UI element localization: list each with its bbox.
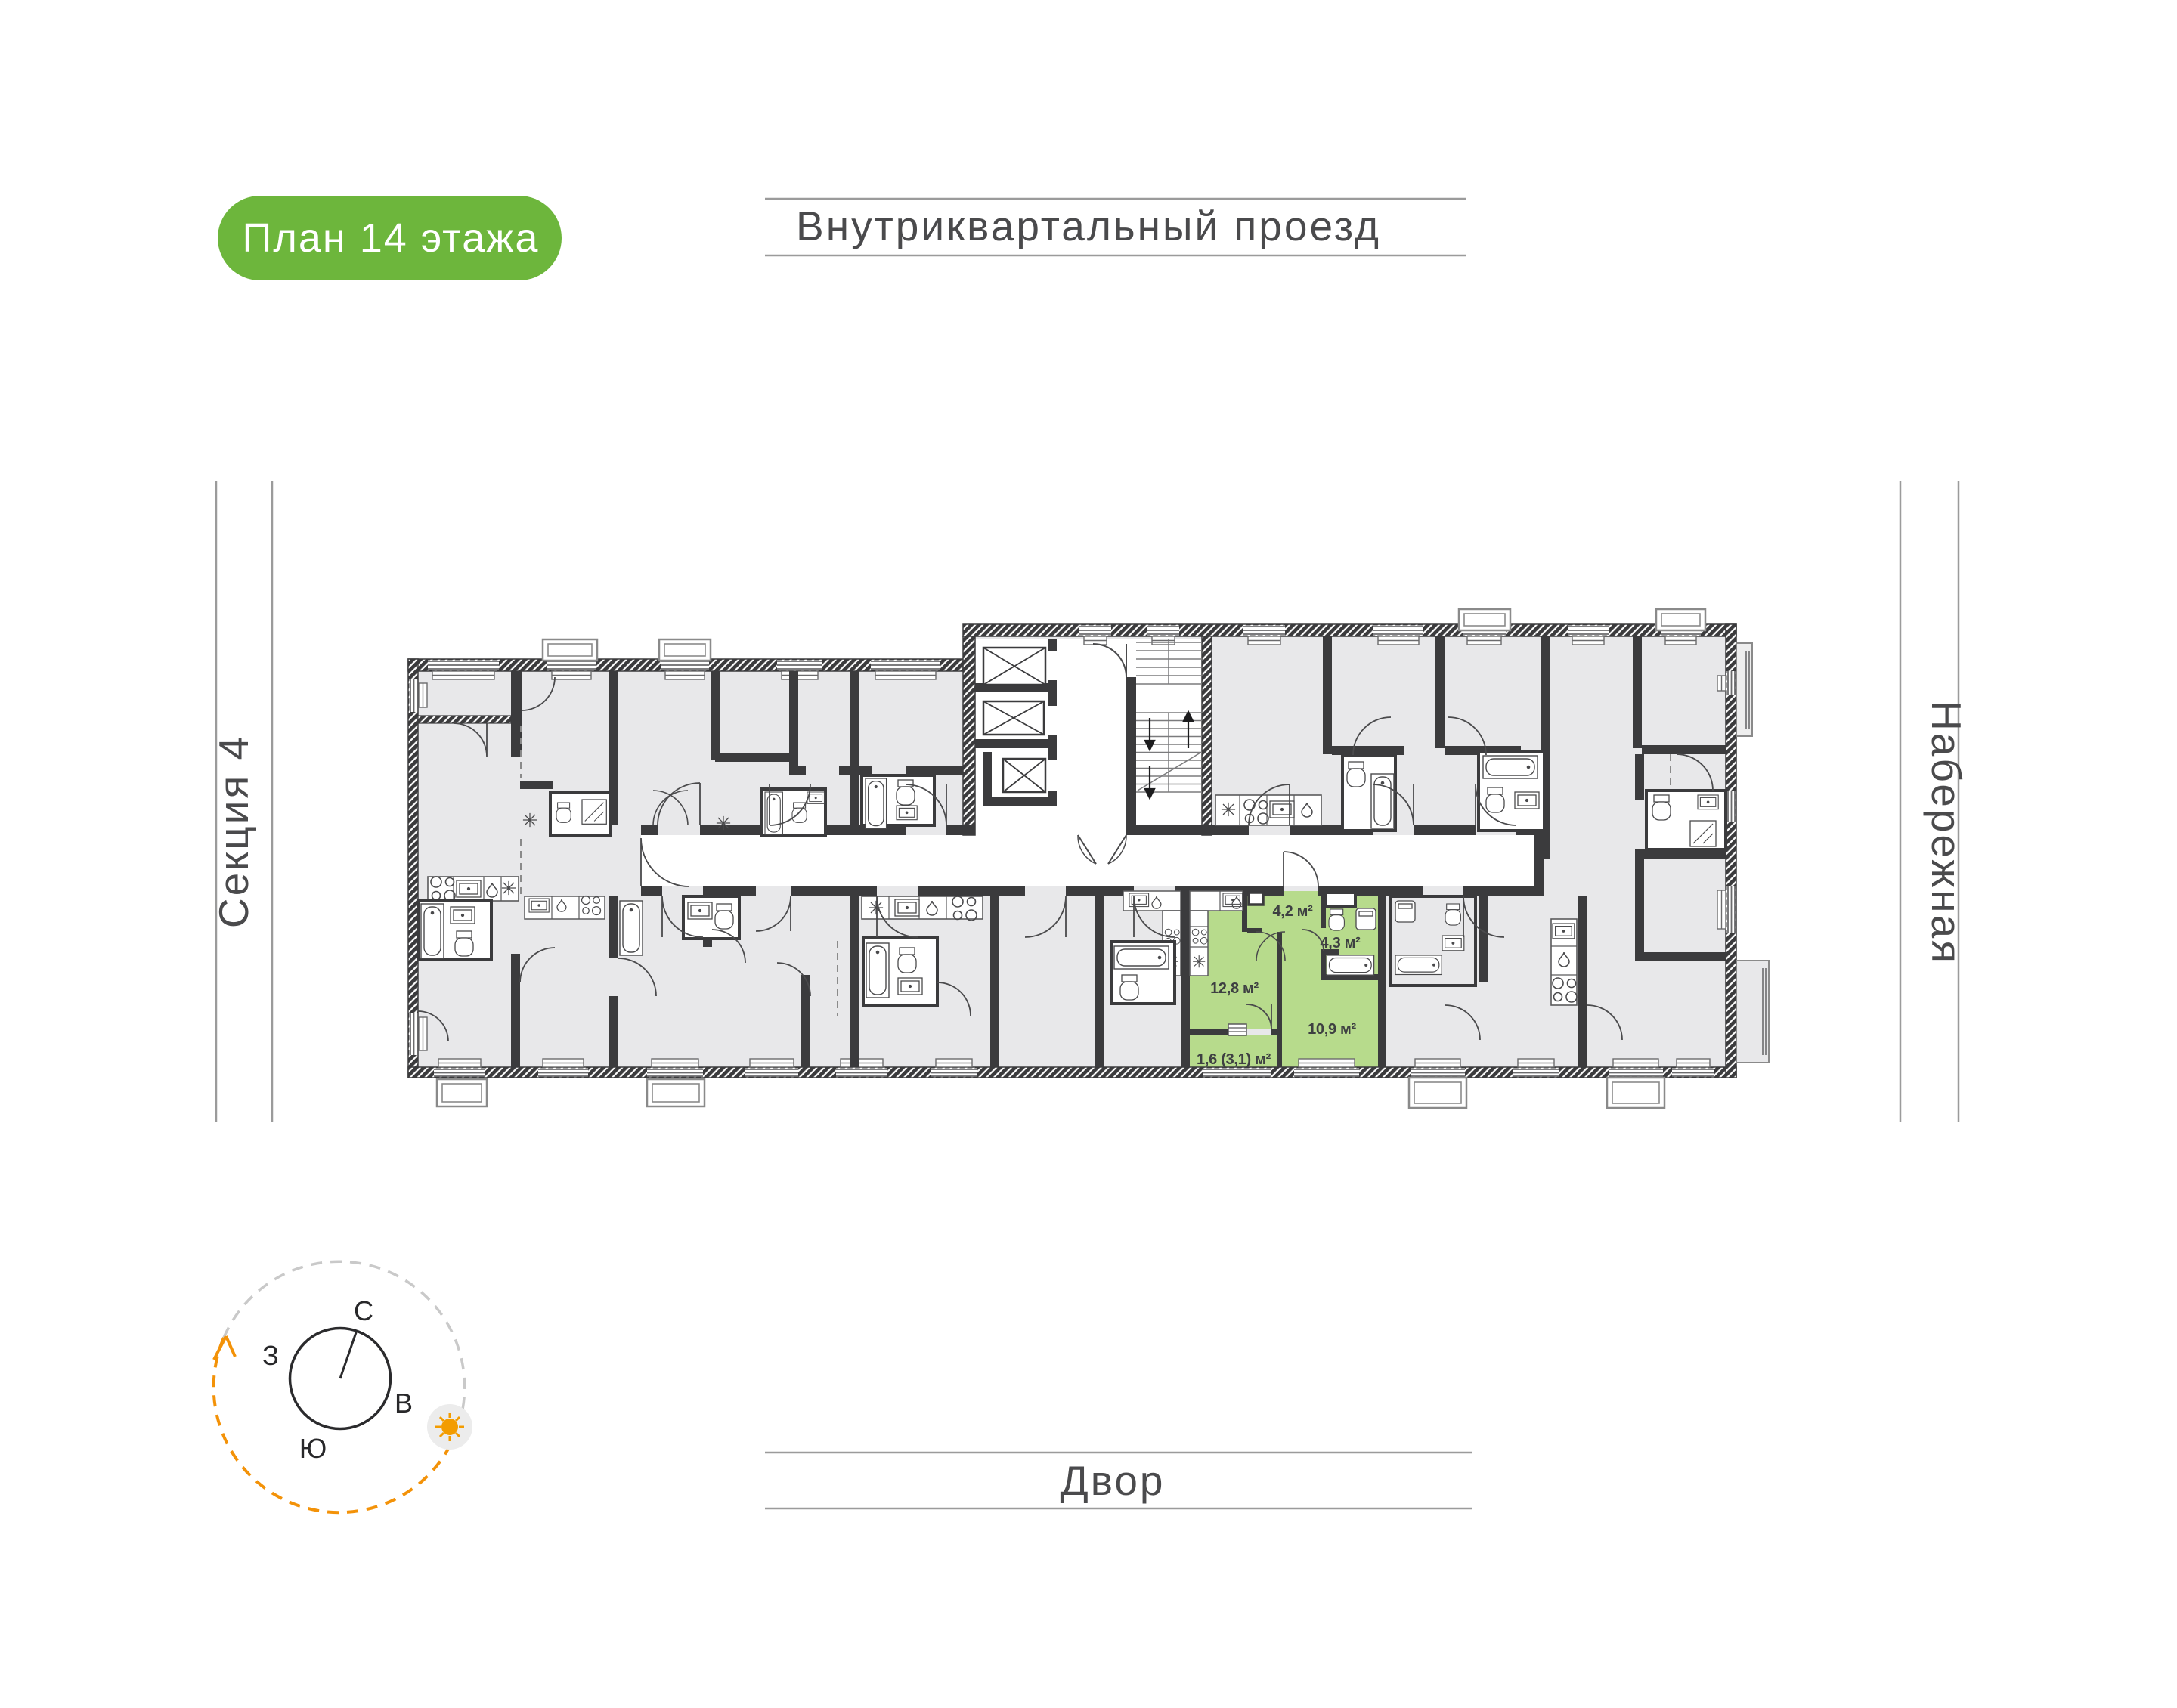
svg-text:План 14 этажа: План 14 этажа [243,215,540,261]
svg-text:С: С [354,1295,373,1326]
svg-text:Внутриквартальный проезд: Внутриквартальный проезд [796,203,1381,249]
svg-text:З: З [262,1340,279,1371]
svg-text:4,3 м²: 4,3 м² [1320,935,1361,951]
svg-text:4,2 м²: 4,2 м² [1272,903,1313,920]
svg-text:Набережная: Набережная [1923,701,1970,965]
svg-text:Ю: Ю [299,1433,327,1464]
svg-text:Секция 4: Секция 4 [210,735,257,928]
svg-text:12,8 м²: 12,8 м² [1210,980,1259,997]
svg-text:10,9 м²: 10,9 м² [1308,1021,1356,1038]
svg-text:Двор: Двор [1060,1457,1165,1504]
svg-text:В: В [395,1388,413,1419]
svg-text:1,6 (3,1) м²: 1,6 (3,1) м² [1197,1051,1271,1068]
